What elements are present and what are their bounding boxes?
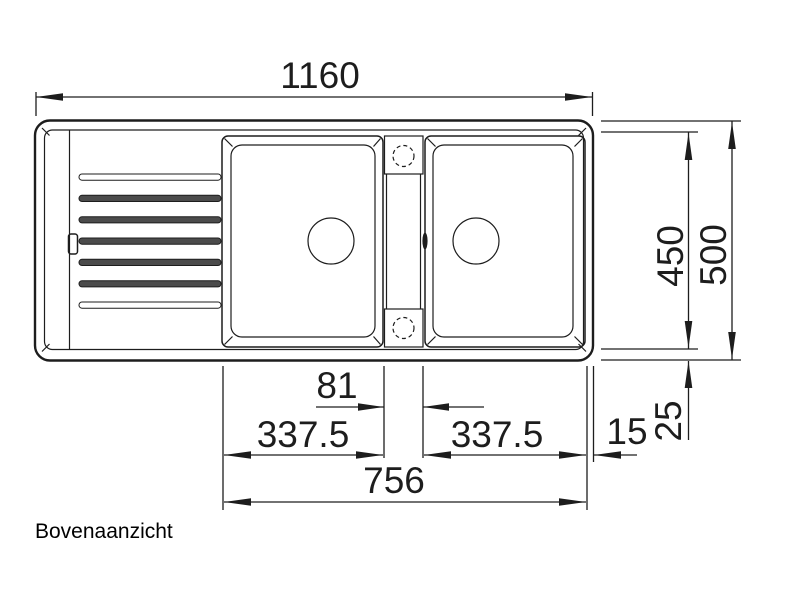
sink-body — [35, 121, 593, 361]
arrowhead — [559, 498, 586, 506]
ridge-bar — [79, 217, 221, 223]
arrowhead — [559, 451, 586, 459]
ridge-bar — [79, 281, 221, 287]
arrowhead — [36, 93, 63, 101]
dim-overall-width: 1160 — [36, 55, 593, 116]
ridge-bar — [79, 238, 221, 244]
arrowhead — [565, 93, 592, 101]
left-bowl — [222, 136, 383, 347]
left-bowl-chamfers — [225, 139, 381, 345]
ridge-bar — [79, 195, 221, 201]
dim-center-ledge: 81 — [316, 365, 484, 411]
dim-label-25: 25 — [648, 400, 689, 441]
arrowhead — [224, 498, 251, 506]
right-bowl — [425, 136, 585, 347]
dim-label-337-5-right: 337.5 — [451, 414, 544, 455]
left-bowl-drain — [308, 218, 354, 264]
arrowhead — [728, 122, 736, 149]
ridge-bar — [79, 259, 221, 265]
arrowhead — [728, 332, 736, 359]
right-bowl-inner — [433, 145, 573, 337]
technical-drawing-page: 1160 450 500 25 81 — [0, 0, 800, 597]
right-bowl-chamfers — [428, 139, 583, 345]
dim-left-bowl: 337.5 — [224, 414, 383, 459]
left-bowl-inner — [231, 145, 375, 337]
sink-top-view-drawing: 1160 450 500 25 81 — [0, 0, 800, 597]
right-bowl-drain — [453, 218, 499, 264]
dim-inner-depth: 450 — [601, 132, 698, 349]
dim-label-15: 15 — [606, 411, 647, 452]
drainboard-ridges — [79, 174, 221, 308]
arrowhead — [356, 451, 383, 459]
dim-label-1160: 1160 — [280, 55, 360, 96]
left-bowl-outer — [222, 136, 383, 347]
arrowhead — [424, 451, 451, 459]
arrowhead — [685, 133, 693, 160]
arrowhead — [685, 321, 693, 348]
arrowhead — [224, 451, 251, 459]
ridge-bar — [79, 302, 221, 308]
center-ledge-bottom-box — [385, 309, 424, 347]
dim-label-450: 450 — [650, 225, 691, 287]
dim-label-337-5-left: 337.5 — [257, 414, 350, 455]
tap-hole-top — [393, 146, 414, 167]
tap-hole-bottom — [393, 318, 414, 339]
view-caption: Bovenaanzicht — [35, 520, 173, 543]
dim-label-756: 756 — [363, 460, 425, 501]
dim-rim-gap: 25 — [648, 361, 692, 442]
dim-right-bowl: 337.5 — [424, 414, 586, 459]
ridge-bar — [79, 174, 221, 180]
drainboard — [69, 131, 222, 350]
center-ledge-top-box — [385, 136, 424, 174]
dim-bowl-span: 756 — [224, 460, 586, 506]
arrowhead — [685, 361, 693, 388]
arrowhead — [358, 403, 384, 411]
dim-label-500: 500 — [693, 224, 734, 286]
dim-edge-gap: 15 — [594, 411, 648, 459]
right-bowl-outer — [425, 136, 585, 347]
dim-label-81: 81 — [316, 365, 357, 406]
center-ledge — [385, 136, 428, 347]
